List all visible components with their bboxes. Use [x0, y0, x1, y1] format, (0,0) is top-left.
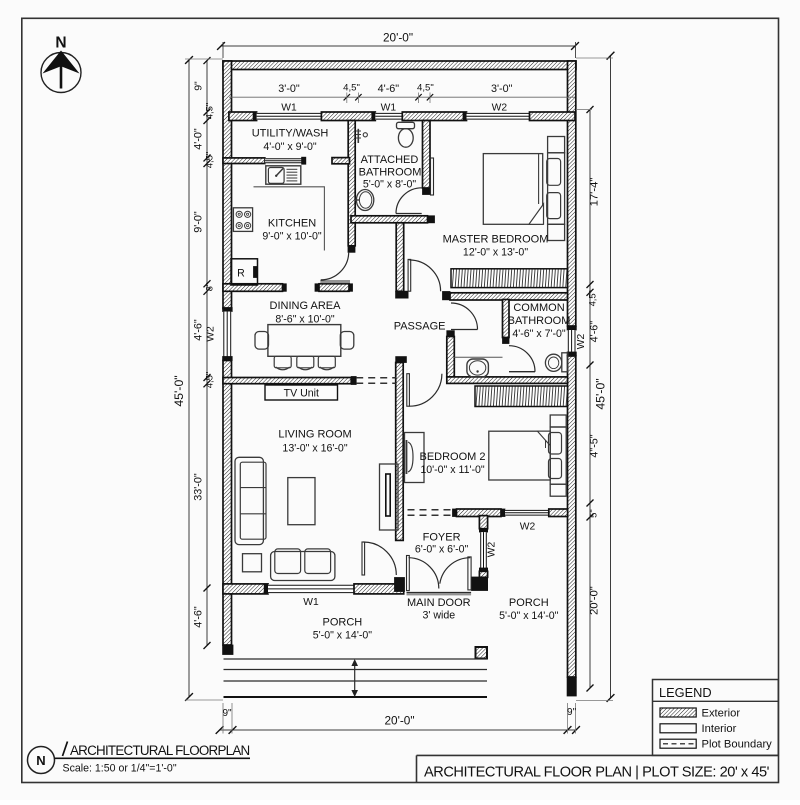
- svg-text:W1: W1: [381, 103, 397, 114]
- svg-text:Interior: Interior: [702, 723, 737, 735]
- svg-text:4,5": 4,5": [343, 83, 360, 94]
- svg-text:ATTACHED: ATTACHED: [361, 154, 419, 166]
- svg-text:W2: W2: [576, 334, 587, 350]
- svg-text:10'-0" x 11'-0": 10'-0" x 11'-0": [420, 464, 485, 476]
- svg-text:4'-6" x 7'-0": 4'-6" x 7'-0": [512, 328, 566, 340]
- svg-text:W2: W2: [520, 522, 536, 533]
- svg-text:BATHROOM: BATHROOM: [508, 315, 571, 327]
- svg-text:4'-6": 4'-6": [193, 319, 205, 341]
- svg-text:45'-0": 45'-0": [172, 375, 186, 406]
- svg-text:20'-0": 20'-0": [589, 586, 601, 615]
- svg-text:4'-0": 4'-0": [193, 128, 205, 150]
- svg-text:COMMON: COMMON: [513, 302, 564, 314]
- svg-text:33'-0": 33'-0": [193, 473, 205, 501]
- svg-text:6'-0" x 6'-0": 6'-0" x 6'-0": [415, 544, 469, 556]
- svg-text:45'-0": 45'-0": [594, 378, 608, 409]
- svg-text:4,5": 4,5": [204, 152, 215, 168]
- svg-text:W2: W2: [492, 103, 508, 114]
- svg-text:KITCHEN: KITCHEN: [268, 218, 316, 230]
- svg-text:4'-6": 4'-6": [589, 321, 601, 343]
- svg-text:PORCH: PORCH: [509, 597, 549, 609]
- svg-text:12'-0" x 13'-0": 12'-0" x 13'-0": [463, 247, 528, 259]
- svg-text:3' wide: 3' wide: [422, 610, 455, 622]
- svg-text:9": 9": [222, 708, 232, 719]
- svg-text:4'-6": 4'-6": [378, 83, 400, 95]
- svg-text:9": 9": [193, 81, 205, 91]
- svg-text:9": 9": [567, 707, 577, 718]
- svg-text:20'-0": 20'-0": [384, 714, 414, 728]
- svg-text:9'-0": 9'-0": [193, 211, 205, 233]
- svg-text:4,5": 4,5": [204, 372, 215, 388]
- svg-text:20'-0": 20'-0": [383, 31, 413, 45]
- svg-text:4,5": 4,5": [204, 103, 215, 119]
- svg-text:5": 5": [588, 509, 599, 518]
- svg-text:Exterior: Exterior: [702, 708, 741, 720]
- svg-text:PASSAGE: PASSAGE: [394, 321, 446, 333]
- svg-text:4'-0" x 9'-0": 4'-0" x 9'-0": [263, 141, 317, 153]
- svg-text:3'-0": 3'-0": [491, 83, 513, 95]
- svg-text:4"-5": 4"-5": [589, 434, 601, 457]
- svg-text:MASTER BEDROOM: MASTER BEDROOM: [443, 234, 549, 246]
- svg-text:DINING AREA: DINING AREA: [270, 300, 342, 312]
- svg-text:5'-0" x 8'-0": 5'-0" x 8'-0": [363, 179, 417, 191]
- svg-text:BATHROOM: BATHROOM: [359, 167, 422, 179]
- svg-text:BEDROOM 2: BEDROOM 2: [419, 451, 485, 463]
- svg-text:3'-0": 3'-0": [278, 83, 300, 95]
- svg-text:R: R: [237, 268, 245, 280]
- svg-text:5'-0" x 14'-0": 5'-0" x 14'-0": [313, 630, 373, 642]
- svg-text:ARCHITECTURAL FLOORPLAN: ARCHITECTURAL FLOORPLAN: [70, 743, 250, 758]
- svg-text:LEGEND: LEGEND: [659, 685, 712, 700]
- svg-text:9'-0" x 10'-0": 9'-0" x 10'-0": [262, 231, 322, 243]
- svg-text:TV Unit: TV Unit: [284, 387, 319, 399]
- svg-text:PORCH: PORCH: [323, 617, 363, 629]
- svg-text:ARCHITECTURAL FLOOR PLAN | PLO: ARCHITECTURAL FLOOR PLAN | PLOT SIZE: 20…: [424, 765, 770, 781]
- svg-text:W1: W1: [303, 597, 319, 608]
- svg-text:UTILITY/WASH: UTILITY/WASH: [252, 128, 329, 140]
- svg-text:Plot Boundary: Plot Boundary: [702, 739, 773, 751]
- svg-text:MAIN DOOR: MAIN DOOR: [407, 597, 471, 609]
- svg-text:17'-4": 17'-4": [589, 178, 601, 207]
- svg-text:8": 8": [204, 283, 215, 292]
- svg-text:N: N: [55, 35, 66, 52]
- svg-text:4'-6": 4'-6": [193, 606, 205, 628]
- svg-text:N: N: [36, 753, 45, 768]
- svg-text:4,5°: 4,5°: [587, 289, 598, 306]
- svg-text:W2: W2: [487, 542, 498, 558]
- svg-text:LIVING ROOM: LIVING ROOM: [278, 429, 351, 441]
- svg-text:4,5": 4,5": [417, 83, 434, 94]
- svg-text:13'-0" x 16'-0": 13'-0" x 16'-0": [282, 443, 347, 455]
- svg-text:8'-6" x 10'-0": 8'-6" x 10'-0": [275, 313, 335, 325]
- svg-text:5'-0" x 14'-0": 5'-0" x 14'-0": [499, 610, 559, 622]
- svg-text:W1: W1: [281, 103, 297, 114]
- svg-text:Scale: 1:50 or 1/4"=1'-0": Scale: 1:50 or 1/4"=1'-0": [63, 762, 177, 774]
- svg-text:W2: W2: [206, 326, 217, 342]
- svg-text:FOYER: FOYER: [423, 531, 461, 543]
